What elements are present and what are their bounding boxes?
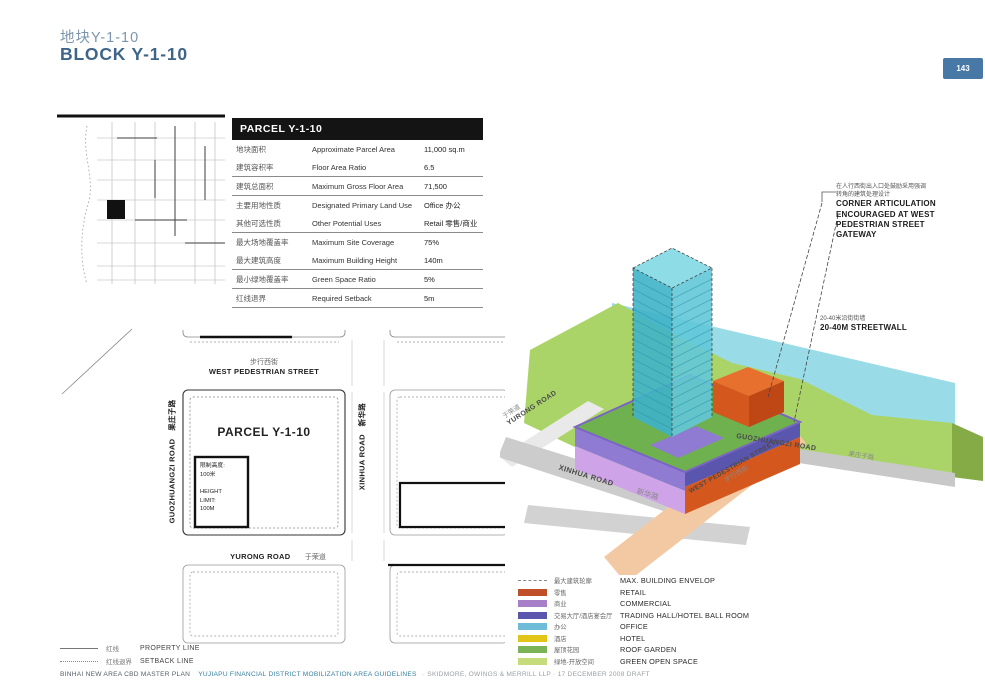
north-block-edge-right	[390, 330, 505, 337]
guozhuangzi-road-label: GUOZHUANGZI ROAD 果庄子路	[167, 382, 178, 542]
xinhua-road-label: XINHUA ROAD 新华路	[357, 367, 368, 527]
table-row: 最大场地覆盖率Maximum Site Coverage75%	[232, 233, 483, 251]
color-swatch	[518, 658, 547, 665]
footer-guidelines-title: YUJIAPU FINANCIAL DISTRICT MOBILIZATION …	[198, 671, 416, 678]
color-swatch	[518, 646, 547, 653]
west-pedestrian-street-label: 步行西街 WEST PEDESTRIAN STREET	[183, 357, 345, 376]
setback-line-sample	[60, 661, 98, 662]
locator-parcel-marker	[107, 200, 125, 219]
note-leader-elbow	[822, 192, 836, 202]
south-block-boundary-right	[390, 565, 505, 643]
south-block-setback-right	[397, 572, 505, 636]
site-plan: 步行西街 WEST PEDESTRIAN STREET GUOZHUANGZI …	[60, 328, 505, 668]
axonometric-diagram: 于荣道 YURONG ROAD XINHUA ROAD 新华路 GUOZHUAN…	[500, 175, 985, 575]
page-title: BLOCK Y-1-10	[60, 44, 188, 65]
table-row: 其他可选性质Other Potential UsesRetail 零售/商业	[232, 214, 483, 233]
legend-item-commercial: 商业 COMMERCIAL	[518, 598, 768, 610]
streetwall-note: 20-40米沿街街墙 20-40M STREETWALL	[820, 315, 960, 333]
legend-item-office: 办公 OFFICE	[518, 621, 768, 633]
legend-item-green-open-space: 绿地-开放空间 GREEN OPEN SPACE	[518, 656, 768, 668]
adjacent-parcel-boundary	[390, 390, 505, 535]
legend-item-roof-garden: 屋顶花园 ROOF GARDEN	[518, 644, 768, 656]
legend-item-hotel: 酒店 HOTEL	[518, 633, 768, 645]
locator-boundary-line	[82, 126, 91, 284]
color-swatch	[518, 612, 547, 619]
locator-map-drawing	[57, 108, 225, 288]
diagram-legend: 最大建筑轮廓 MAX. BUILDING ENVELOP 零售 RETAIL 商…	[518, 575, 768, 667]
legend-item-retail: 零售 RETAIL	[518, 587, 768, 599]
legend-item-envelope: 最大建筑轮廓 MAX. BUILDING ENVELOP	[518, 575, 768, 587]
footer-credits: · SKIDMORE, OWINGS & MERRILL LLP · 17 DE…	[423, 671, 650, 678]
south-block-setback	[190, 572, 338, 636]
color-swatch	[518, 635, 547, 642]
south-block-boundary	[183, 565, 345, 643]
table-row: 主要用地性质Designated Primary Land UseOffice …	[232, 196, 483, 214]
adjacent-building-outline	[400, 483, 505, 527]
dashed-line-swatch	[518, 580, 547, 581]
page-footer: BINHAI NEW AREA CBD MASTER PLAN YUJIAPU …	[60, 671, 960, 678]
table-row: 建筑总面积Maximum Gross Floor Area71,500	[232, 177, 483, 196]
property-line-sample	[60, 648, 98, 649]
height-limit-note: 限制高度: 100米 HEIGHT LIMIT: 100M	[200, 462, 246, 514]
table-row: 红线退界Required Setback5m	[232, 289, 483, 308]
yurong-road-label: YURONG ROAD 于荣道	[183, 546, 373, 564]
adjacent-parcel-setback	[397, 397, 505, 528]
plan-diagonal-line	[62, 329, 132, 394]
plan-legend-setback-line: 红线退界 SETBACK LINE	[60, 655, 194, 667]
corner-articulation-note: 在人行西街出入口处鼓励采用强调 转角的建筑处理设计 CORNER ARTICUL…	[836, 183, 984, 241]
color-swatch	[518, 600, 547, 607]
locator-map	[57, 108, 225, 288]
parcel-data-table: PARCEL Y-1-10 地块面积Approximate Parcel Are…	[232, 118, 483, 308]
table-row: 建筑容积率Floor Area Ratio6.5	[232, 158, 483, 177]
table-row: 最大建筑高度Maximum Building Height140m	[232, 251, 483, 270]
footer-document-title: BINHAI NEW AREA CBD MASTER PLAN	[60, 671, 190, 678]
site-plan-drawing	[60, 328, 505, 668]
green-open-space-side	[952, 423, 983, 481]
locator-major-streets	[117, 126, 225, 243]
color-swatch	[518, 623, 547, 630]
table-row: 地块面积Approximate Parcel Area11,000 sq.m	[232, 140, 483, 158]
document-page: 地块Y-1-10 BLOCK Y-1-10 143 PARCEL Y-1-10 …	[0, 0, 985, 694]
color-swatch	[518, 589, 547, 596]
legend-item-trading-hall: 交易大厅/酒店宴会厅 TRADING HALL/HOTEL BALL ROOM	[518, 610, 768, 622]
table-header: PARCEL Y-1-10	[232, 118, 483, 140]
parcel-name-label: PARCEL Y-1-10	[183, 425, 345, 439]
page-number-badge: 143	[943, 58, 983, 79]
table-row: 最小绿地覆盖率Green Space Ratio5%	[232, 270, 483, 289]
plan-legend-property-line: 红线 PROPERTY LINE	[60, 642, 200, 654]
